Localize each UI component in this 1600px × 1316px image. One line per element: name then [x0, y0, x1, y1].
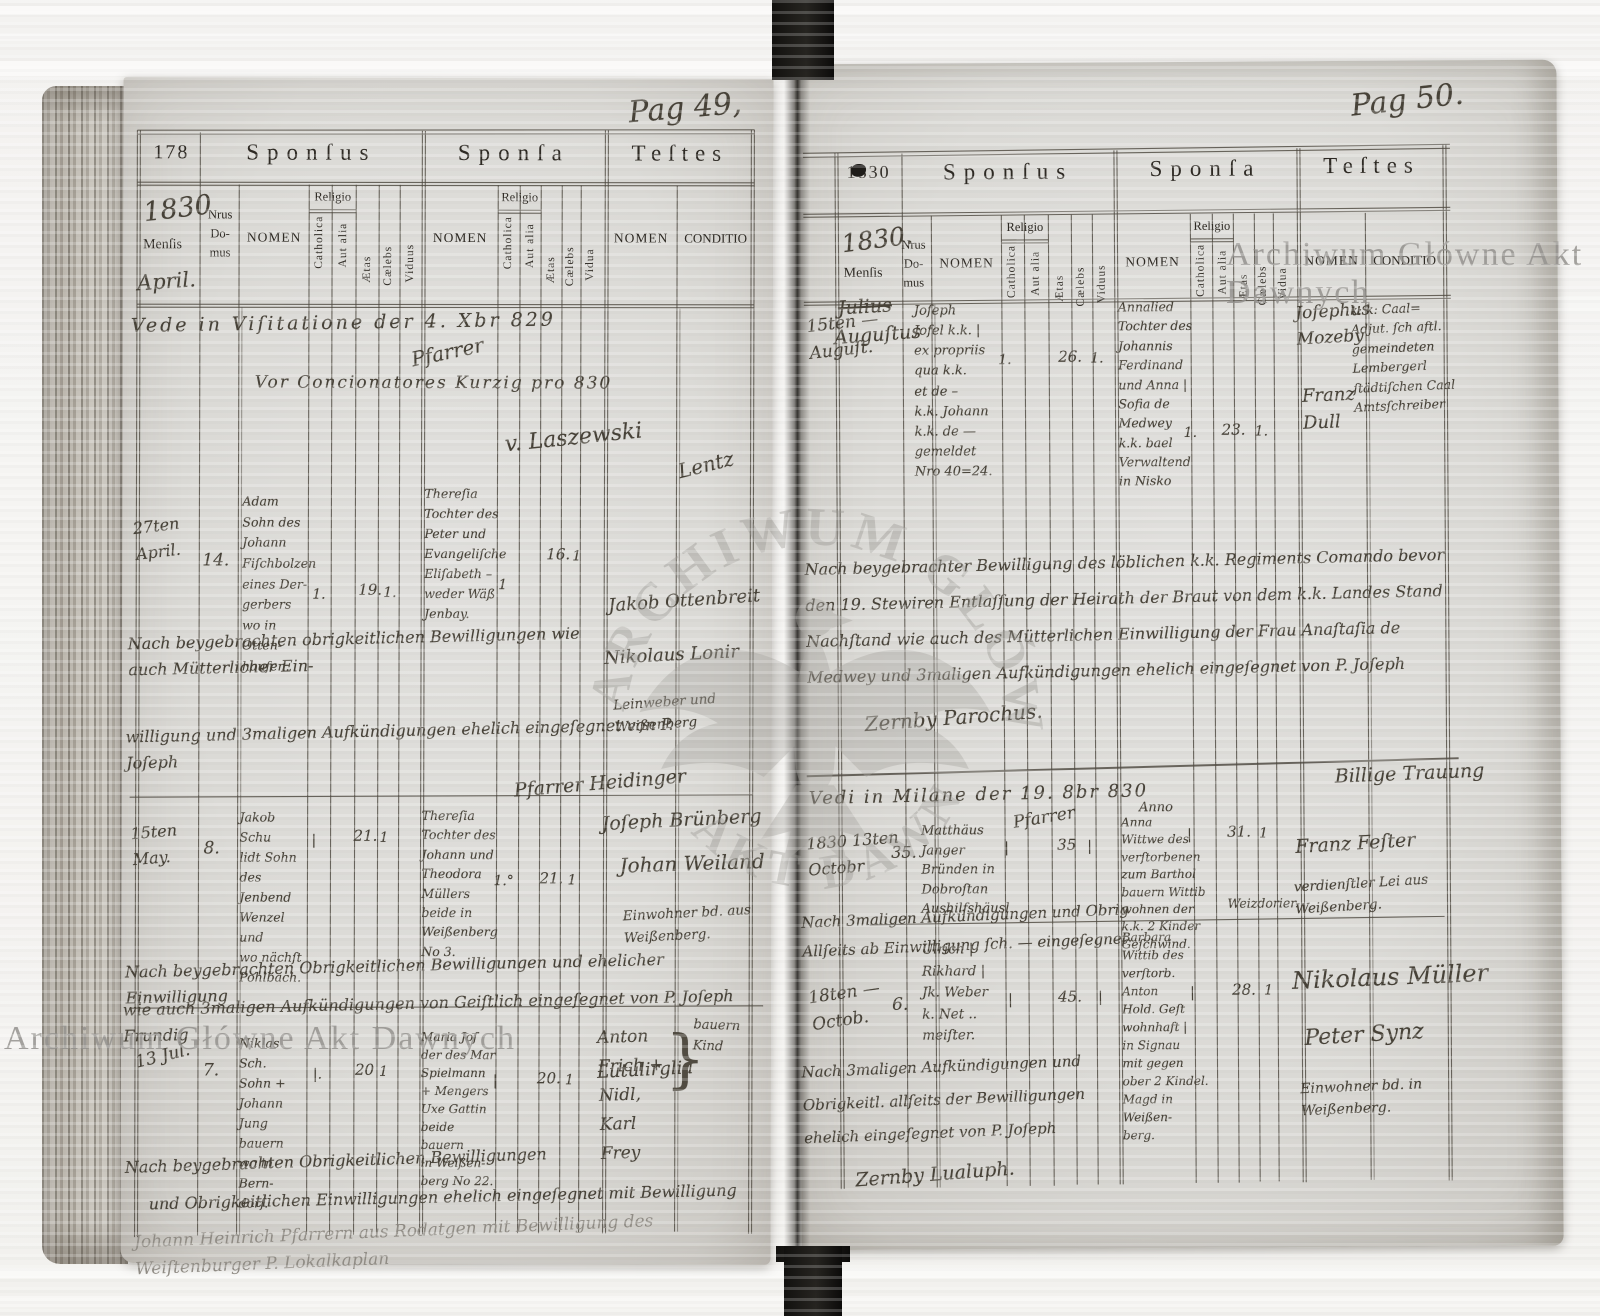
- entry-annotation: Nach beygebrachter Bewilligung des löbli…: [804, 537, 1462, 696]
- groom-caelebs-mark: 1: [380, 827, 389, 849]
- left-header-sponsus: Sponſus: [200, 139, 422, 166]
- left-mensis-label: Menſis: [143, 237, 182, 253]
- groom-age: 20: [355, 1058, 374, 1082]
- witness-name: Nikolaus Lonir: [603, 636, 774, 673]
- bride-caelebs-mark: 1: [565, 1069, 574, 1091]
- witness-name: Peter Synz: [1303, 1008, 1525, 1056]
- groom-caelebs-mark: |: [1087, 836, 1092, 858]
- right-sponsa-aut-alia-label: Aut alia: [1217, 250, 1229, 295]
- bride-catholica-mark: 1: [498, 574, 507, 596]
- groom-name: Niklas Sch. Sohn + Johann Jung bauern wo…: [239, 1033, 309, 1213]
- bride-caelebs-mark: 1: [1264, 979, 1273, 1001]
- groom-age: 35: [1057, 833, 1076, 857]
- bride-catholica-mark: 1.: [1184, 422, 1197, 444]
- right-header-sponsus: Sponſus: [902, 158, 1114, 185]
- bride-age: 28.: [1232, 978, 1256, 1002]
- entry-date: 1830 13ten Octobr: [805, 825, 901, 883]
- right-testes-nomen-label: NOMEN: [1298, 253, 1366, 269]
- left-sponsa-religio-label: Religio: [498, 190, 541, 205]
- bride-name: Annalied Tochter des Johannis Ferdinand …: [1118, 297, 1205, 491]
- entry-date: 27ten April.: [131, 511, 183, 567]
- binding-strap-top: [772, 0, 834, 80]
- right-sponsa-caelebs-label: Cælebs: [1257, 265, 1269, 305]
- bride-name: Thereſia Tochter des Peter und Evangeliſ…: [424, 484, 500, 624]
- witness-condition: Einwohner bd. in Weißenberg.: [1300, 1071, 1472, 1123]
- right-sponsus-aut-alia-label: Aut alia: [1030, 251, 1042, 296]
- right-page-number: Pag 50.: [1348, 70, 1466, 130]
- left-sponsus-religio-label: Religio: [309, 190, 356, 205]
- entry-annotation: Nach 3maligen Aufkündigungen und Obrigke…: [801, 1038, 1265, 1156]
- right-header-testes: Teſtes: [1297, 152, 1446, 179]
- left-sponsus-catholica-label: Catholica: [313, 216, 325, 269]
- left-sponsus-aut-alia-label: Aut alia: [337, 223, 349, 268]
- entry-annotation: Nach beygebrachten obrigkeitlichen Bewil…: [128, 620, 599, 682]
- groom-viduus-mark: |: [1098, 986, 1103, 1008]
- left-sponsa-catholica-label: Catholica: [502, 216, 514, 269]
- bride-age: 31.: [1227, 820, 1251, 844]
- entry-date: 15ten — Auguſt.: [805, 306, 882, 368]
- groom-catholica-mark: |: [312, 830, 317, 852]
- entry-annotation-signature: Zernby Parochus.: [863, 695, 1043, 740]
- left-header-testes: Teſtes: [605, 140, 754, 166]
- left-page-number: Pag 49,: [627, 80, 744, 137]
- groom-catholica-mark: |.: [313, 1064, 322, 1086]
- right-header-sponsa: Sponſa: [1114, 155, 1297, 182]
- witness-condition: bauern Kind: [692, 1015, 774, 1060]
- groom-name: Joſeph Jofel k.k. | ex propriis qua k.k.…: [914, 301, 1001, 483]
- groom-caelebs-mark: 1.: [1090, 347, 1103, 369]
- binding-strap-bottom: [784, 1246, 842, 1316]
- witness-name: Jakob Ottenbreit: [607, 581, 779, 621]
- left-testes-nomen-label: NOMEN: [605, 230, 677, 246]
- right-sponsa-religio-label: Religio: [1190, 219, 1233, 234]
- bride-age: 20.: [537, 1066, 561, 1090]
- bride-catholica-mark: 1.°: [493, 870, 513, 892]
- bride-age: 23.: [1222, 418, 1246, 442]
- groom-catholica-mark: 1.: [312, 584, 325, 606]
- entry-annotation-signature: Pfarrer Heidinger: [513, 761, 687, 806]
- visitation-flourish: Lentz: [675, 442, 738, 487]
- left-page: Pag 49, 178 Sponſus Sponſa Teſtes 1830 M…: [120, 77, 773, 1265]
- bride-caelebs-mark: 1.: [1255, 420, 1268, 442]
- right-nrus-domus-label: Nrus Do- mus: [895, 236, 931, 292]
- entry-annotation: Nach beygebrachten Obrigkeitlichen Bewil…: [124, 1137, 685, 1181]
- left-folio-number: 178: [143, 141, 199, 164]
- groom-age: 45.: [1058, 985, 1082, 1009]
- pencil-annotation: Johann Heinrich Pfarrern aus Rodatgen mi…: [134, 1206, 696, 1283]
- left-sponsus-caelebs-label: Cælebs: [382, 246, 394, 286]
- bride-caelebs-mark: 1: [567, 869, 576, 891]
- right-conditio-label: CONDITIO: [1366, 252, 1444, 268]
- right-sponsus-viduus-label: Viduus: [1096, 264, 1108, 303]
- entry-house-number: 8.: [203, 835, 219, 862]
- right-mensis-label: Menſis: [844, 266, 883, 282]
- witness-name: Nikolaus Müller: [1291, 951, 1552, 1000]
- witness-name: Joſeph Brünberg: [601, 800, 782, 839]
- groom-catholica-mark: 1.: [998, 349, 1011, 371]
- right-sponsus-aetas-label: Ætas: [1054, 275, 1066, 302]
- right-folio-number: 1830: [835, 162, 902, 183]
- witness-name: Franz Feſter: [1294, 822, 1475, 863]
- left-sponsa-nomen-label: NOMEN: [422, 230, 498, 246]
- witness-condition: verdienſtler Lei aus Weißenberg.: [1293, 868, 1455, 920]
- left-nrus-domus-label: Nrus Do- mus: [202, 205, 238, 261]
- entry-date: 18ten — Octob.: [807, 975, 886, 1039]
- right-sponsa-vidua-label: Vidua: [1277, 267, 1289, 299]
- entry-house-number: 7.: [203, 1057, 219, 1084]
- witness-condition: Einwohner bd. aus Weißenberg.: [622, 899, 774, 950]
- entry-date: 15ten May.: [129, 817, 180, 872]
- right-sponsus-caelebs-label: Cælebs: [1075, 267, 1087, 307]
- visitation-line3: v. Laszewski: [503, 413, 644, 462]
- entry-house-number: 6.: [892, 992, 908, 1019]
- bride-caelebs-mark: 1: [1259, 822, 1268, 844]
- bride-age: 21.: [539, 866, 563, 890]
- scanned-marriage-register-spread: Pag 49, 178 Sponſus Sponſa Teſtes 1830 M…: [0, 0, 1600, 1316]
- entry-house-number: 14.: [202, 547, 229, 574]
- groom-catholica-mark: |: [1008, 989, 1013, 1011]
- left-sponsa-vidua-label: Vidua: [584, 248, 596, 280]
- groom-catholica-mark: |: [1004, 837, 1009, 859]
- visitation-line1: Vede in Viſitatione der 4. Xbr 829: [131, 305, 556, 342]
- right-page: Pag 50. 1830 Sponſus Sponſa Teſtes 1830.…: [794, 60, 1563, 1251]
- left-sponsa-aetas-label: Ætas: [545, 256, 557, 283]
- left-header-sponsa: Sponſa: [422, 140, 605, 166]
- billige-trauung-note: Billige Trauung: [1334, 756, 1485, 793]
- witness-condition: k: k: Caal= Adjut. ſch aftl. gemeindeten…: [1350, 297, 1459, 417]
- left-sponsa-aut-alia-label: Aut alia: [524, 223, 536, 268]
- witness-name: Johan Weiland: [619, 844, 800, 882]
- vedi-note: Vedi in Milane der 19. 8br 830: [809, 777, 1149, 814]
- right-sponsus-nomen-label: NOMEN: [932, 255, 1002, 271]
- left-sponsa-caelebs-label: Cælebs: [564, 246, 576, 286]
- groom-caelebs-mark: 1.: [383, 582, 396, 604]
- left-sponsus-viduus-label: Viduus: [404, 244, 416, 283]
- groom-age: 26.: [1058, 345, 1082, 369]
- left-sponsus-aetas-label: Ætas: [361, 256, 373, 283]
- visitation-line2: Vor Concionatores Kurzig pro 830: [255, 369, 613, 397]
- left-conditio-label: CONDITIO: [677, 231, 754, 247]
- left-month-handwritten: April.: [136, 263, 197, 300]
- right-sponsa-nomen-label: NOMEN: [1115, 254, 1191, 270]
- right-sponsa-catholica-label: Catholica: [1194, 244, 1206, 297]
- bride-name: Thereſia Tochter des Johann und Theodora…: [421, 806, 501, 961]
- bride-catholica-mark: |: [493, 1070, 498, 1092]
- bride-catholica-mark: |: [1187, 824, 1192, 846]
- groom-age: 21.: [354, 824, 378, 848]
- groom-caelebs-mark: 1: [379, 1061, 388, 1083]
- bride-caelebs-mark: 1: [572, 545, 581, 567]
- book-page-edges: [42, 86, 128, 1264]
- bride-catholica-mark: |: [1190, 982, 1195, 1004]
- groom-name: Ulrich | Rikhard | Jk. Weber k. Net .. m…: [922, 939, 1001, 1047]
- entry-house-number: 35.: [891, 840, 917, 866]
- left-sponsus-nomen-label: NOMEN: [239, 229, 309, 245]
- right-sponsus-religio-label: Religio: [1001, 220, 1048, 235]
- entry-annotation: willigung und 3maligen Aufkündigungen eh…: [125, 711, 686, 775]
- right-sponsus-catholica-label: Catholica: [1005, 245, 1017, 298]
- right-sponsa-aetas-label: Ætas: [1238, 274, 1250, 301]
- groom-age: 19.: [358, 578, 382, 602]
- entry-annotation-signature: Zernby Lualuph.: [854, 1153, 1015, 1195]
- bride-age: 16.: [546, 542, 570, 566]
